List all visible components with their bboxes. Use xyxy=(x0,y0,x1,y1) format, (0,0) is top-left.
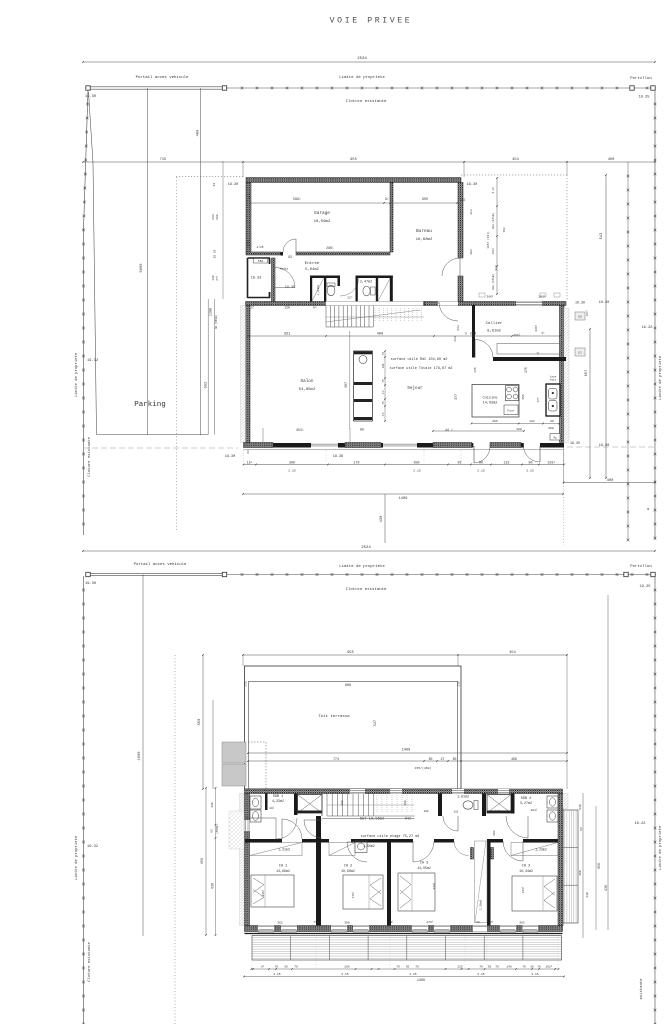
svg-text:355: 355 xyxy=(522,394,525,399)
svg-text:388: 388 xyxy=(404,800,407,805)
svg-text:543: 543 xyxy=(600,233,604,240)
svg-text:Salon: Salon xyxy=(301,379,314,384)
svg-text:17: 17 xyxy=(250,306,254,310)
svg-text:27¹: 27¹ xyxy=(216,275,219,281)
svg-text:380: 380 xyxy=(493,830,496,835)
svg-text:909: 909 xyxy=(345,684,351,688)
svg-text:Limite de propriete: Limite de propriete xyxy=(74,835,79,880)
svg-text:1409: 1409 xyxy=(402,749,410,753)
svg-text:3¹: 3¹ xyxy=(390,921,394,924)
svg-text:2.15: 2.15 xyxy=(531,973,538,976)
svg-text:907: 907 xyxy=(495,265,498,270)
svg-text:197¹: 197¹ xyxy=(586,309,589,316)
svg-text:430: 430 xyxy=(585,892,589,898)
svg-text:280: 280 xyxy=(344,965,349,968)
svg-text:Toit terrasse: Toit terrasse xyxy=(318,714,350,719)
svg-text:527: 527 xyxy=(373,720,377,726)
svg-text:7¹: 7¹ xyxy=(536,353,540,356)
svg-text:454: 454 xyxy=(509,651,515,655)
svg-text:120: 120 xyxy=(284,306,290,310)
svg-text:Limite de propriete: Limite de propriete xyxy=(339,75,385,80)
svg-text:70: 70 xyxy=(396,965,400,968)
svg-text:715: 715 xyxy=(160,158,166,162)
svg-text:Cloture existante: Cloture existante xyxy=(346,587,387,592)
svg-text:942: 942 xyxy=(405,817,411,821)
svg-text:30: 30 xyxy=(406,965,410,968)
svg-text:454: 454 xyxy=(512,158,518,162)
svg-text:16,68m2: 16,68m2 xyxy=(416,238,433,242)
svg-text:400: 400 xyxy=(607,479,614,483)
svg-text:14,05m2: 14,05m2 xyxy=(417,866,431,870)
svg-text:Entree: Entree xyxy=(305,261,320,266)
svg-text:5,27m2: 5,27m2 xyxy=(520,801,532,805)
svg-text:22⁵: 22⁵ xyxy=(347,296,352,300)
svg-text:surface utile RdC 104,60 m2: surface utile RdC 104,60 m2 xyxy=(391,357,448,362)
svg-text:75: 75 xyxy=(382,401,385,405)
svg-text:370¹: 370¹ xyxy=(246,239,250,247)
svg-text:44 ¹: 44 ¹ xyxy=(445,428,453,432)
svg-text:430: 430 xyxy=(211,883,215,889)
svg-text:70: 70 xyxy=(415,965,419,968)
svg-text:175: 175 xyxy=(524,367,528,373)
svg-text:300: 300 xyxy=(289,460,295,464)
svg-text:388: 388 xyxy=(516,428,522,431)
svg-text:286¹: 286¹ xyxy=(326,246,334,250)
svg-text:18,56m2: 18,56m2 xyxy=(314,220,331,224)
svg-text:CH 1: CH 1 xyxy=(279,865,287,869)
svg-text:EJ: EJ xyxy=(578,352,582,355)
svg-text:Limite de propriete: Limite de propriete xyxy=(74,352,79,397)
svg-text:283¹: 283¹ xyxy=(538,296,545,299)
svg-text:(55%B): (55%B) xyxy=(215,824,219,834)
svg-text:102¹: 102¹ xyxy=(546,965,553,968)
svg-text:225: 225 xyxy=(457,965,462,968)
svg-text:5600: 5600 xyxy=(140,264,144,273)
svg-text:300: 300 xyxy=(414,460,420,464)
svg-text:a: a xyxy=(647,508,649,512)
svg-text:6¹: 6¹ xyxy=(261,965,265,968)
svg-text:234: 234 xyxy=(457,325,460,331)
svg-text:1,23m2: 1,23m2 xyxy=(535,848,547,852)
svg-text:30: 30 xyxy=(284,965,288,968)
svg-text:300: 300 xyxy=(344,921,350,925)
svg-text:2.15: 2.15 xyxy=(288,469,296,473)
svg-text:47: 47 xyxy=(441,757,445,761)
svg-text:54,85m2: 54,85m2 xyxy=(299,388,316,392)
svg-text:2.15: 2.15 xyxy=(526,469,534,473)
svg-text:Four: Four xyxy=(507,410,514,413)
svg-text:vais: vais xyxy=(550,378,557,382)
svg-text:204¹: 204¹ xyxy=(531,809,538,812)
svg-text:1409: 1409 xyxy=(417,979,425,983)
svg-text:388: 388 xyxy=(548,426,554,430)
svg-text:176¹: 176¹ xyxy=(426,920,434,924)
svg-text:650: 650 xyxy=(597,863,601,869)
svg-text:2.15: 2.15 xyxy=(273,973,280,976)
svg-text:Limite de propriete: Limite de propriete xyxy=(339,564,385,569)
svg-text:19.30: 19.30 xyxy=(599,444,610,448)
svg-text:30: 30 xyxy=(488,965,492,968)
svg-text:2.15: 2.15 xyxy=(477,973,484,976)
svg-text:EU: EU xyxy=(578,316,582,319)
svg-text:19.30: 19.30 xyxy=(599,301,610,305)
svg-text:774: 774 xyxy=(333,757,339,761)
svg-text:19.36: 19.36 xyxy=(333,455,344,459)
svg-text:62: 62 xyxy=(213,183,216,187)
svg-text:430: 430 xyxy=(380,516,384,523)
svg-text:1409: 1409 xyxy=(399,497,408,501)
svg-text:300 (15%B): 300 (15%B) xyxy=(491,274,495,291)
svg-text:Cloture existante: Cloture existante xyxy=(346,99,387,104)
svg-text:Limite de propriete: Limite de propriete xyxy=(658,355,663,400)
svg-text:331: 331 xyxy=(284,332,290,336)
svg-text:Cloture existante: Cloture existante xyxy=(87,436,92,476)
svg-text:63: 63 xyxy=(211,829,214,833)
svg-text:Portail acces vehicule: Portail acces vehicule xyxy=(136,75,189,80)
svg-text:5,04m2: 5,04m2 xyxy=(305,268,319,272)
svg-text:235: 235 xyxy=(244,681,248,687)
svg-text:70: 70 xyxy=(294,965,298,968)
svg-text:206: 206 xyxy=(492,419,498,423)
svg-text:1200: 1200 xyxy=(210,308,214,316)
svg-text:453¹: 453¹ xyxy=(296,428,304,432)
svg-text:145: 145 xyxy=(474,367,477,372)
svg-text:16.22: 16.22 xyxy=(634,822,645,826)
svg-text:Portillon: Portillon xyxy=(630,564,652,569)
svg-text:9.0¹: 9.0¹ xyxy=(492,186,495,193)
svg-text:90: 90 xyxy=(529,460,533,464)
svg-text:70: 70 xyxy=(495,965,499,968)
svg-text:75: 75 xyxy=(382,379,385,383)
svg-text:CH 2: CH 2 xyxy=(344,865,352,869)
svg-text:41⁵: 41⁵ xyxy=(381,411,385,416)
svg-text:DGT 10,56m2: DGT 10,56m2 xyxy=(360,818,384,822)
svg-text:19.30: 19.30 xyxy=(85,95,96,99)
svg-text:122: 122 xyxy=(529,419,535,423)
svg-text:19.35: 19.35 xyxy=(285,286,296,290)
svg-text:400: 400 xyxy=(608,158,614,162)
svg-text:140: 140 xyxy=(506,965,511,968)
svg-text:Bureau: Bureau xyxy=(416,229,432,234)
svg-text:70: 70 xyxy=(275,965,279,968)
svg-text:existante: existante xyxy=(639,978,644,1000)
svg-text:Limite de propriete: Limite de propriete xyxy=(658,825,663,870)
svg-text:70: 70 xyxy=(479,965,483,968)
svg-text:VOIE PRIVEE: VOIE PRIVEE xyxy=(330,17,413,26)
svg-text:386¹: 386¹ xyxy=(513,333,521,337)
svg-text:8,61m2: 8,61m2 xyxy=(487,330,501,334)
svg-text:360: 360 xyxy=(578,870,582,876)
svg-text:302: 302 xyxy=(519,921,525,925)
svg-text:192: 192 xyxy=(454,811,459,814)
svg-text:400: 400 xyxy=(377,332,383,336)
svg-text:102¹: 102¹ xyxy=(548,460,556,464)
svg-text:657: 657 xyxy=(585,370,589,377)
svg-text:Cellier: Cellier xyxy=(486,321,503,326)
svg-text:30: 30 xyxy=(530,965,534,968)
svg-text:CH 3: CH 3 xyxy=(420,862,428,866)
svg-text:2.15: 2.15 xyxy=(341,973,348,976)
svg-text:Cuisine: Cuisine xyxy=(482,396,497,401)
svg-text:120: 120 xyxy=(382,363,385,368)
svg-text:Garage: Garage xyxy=(314,211,330,216)
svg-text:387: 387 xyxy=(344,382,348,388)
svg-text:1¹: 1¹ xyxy=(465,331,468,335)
svg-text:302: 302 xyxy=(277,921,283,925)
svg-text:Sejour: Sejour xyxy=(407,386,423,391)
svg-text:4,33m2: 4,33m2 xyxy=(272,799,284,803)
svg-text:134¹: 134¹ xyxy=(522,886,525,893)
svg-text:300 (15%B): 300 (15%B) xyxy=(491,213,495,230)
svg-text:1,50m2: 1,50m2 xyxy=(363,844,375,848)
svg-text:10,44m2: 10,44m2 xyxy=(519,869,533,873)
svg-text:3¹A: 3¹A xyxy=(248,193,251,198)
svg-text:Cloture existante: Cloture existante xyxy=(87,941,92,981)
svg-text:177: 177 xyxy=(537,397,540,402)
svg-text:60: 60 xyxy=(453,757,457,761)
svg-text:63: 63 xyxy=(580,827,583,831)
svg-text:1600: 1600 xyxy=(138,752,142,761)
svg-text:19.32: 19.32 xyxy=(87,359,98,363)
svg-text:540: 540 xyxy=(578,804,582,810)
svg-text:599¹: 599¹ xyxy=(293,197,301,201)
svg-text:Portail acces vehicule: Portail acces vehicule xyxy=(134,562,187,567)
svg-text:surface utile Totale 179,67 m2: surface utile Totale 179,67 m2 xyxy=(389,366,452,371)
svg-text:19.30: 19.30 xyxy=(228,183,239,187)
svg-text:20¹: 20¹ xyxy=(269,807,274,810)
svg-text:Parking: Parking xyxy=(134,401,166,409)
svg-text:150: 150 xyxy=(503,227,506,232)
svg-text:2.15: 2.15 xyxy=(477,469,485,473)
svg-text:552: 552 xyxy=(205,382,209,389)
svg-text:955: 955 xyxy=(350,158,356,162)
svg-text:10,96m2: 10,96m2 xyxy=(341,869,355,873)
svg-text:550: 550 xyxy=(198,719,202,726)
svg-text:80: 80 xyxy=(360,428,364,432)
svg-text:90: 90 xyxy=(479,460,483,464)
svg-text:23: 23 xyxy=(461,198,465,202)
svg-text:115¹: 115¹ xyxy=(352,891,355,898)
svg-text:955: 955 xyxy=(347,651,353,655)
svg-text:19.32: 19.32 xyxy=(87,845,98,849)
svg-text:Portillon: Portillon xyxy=(630,76,652,81)
svg-text:480: 480 xyxy=(197,130,201,137)
svg-text:60: 60 xyxy=(429,757,433,761)
svg-text:60 (55%B): 60 (55%B) xyxy=(214,315,218,329)
svg-text:226¹: 226¹ xyxy=(535,324,538,331)
svg-text:9¹: 9¹ xyxy=(385,197,389,201)
svg-text:CH 3: CH 3 xyxy=(522,865,530,869)
svg-text:1,04m2: 1,04m2 xyxy=(317,285,320,295)
svg-text:244: 244 xyxy=(470,332,476,336)
svg-text:650: 650 xyxy=(200,858,204,864)
svg-text:19.30: 19.30 xyxy=(85,582,96,586)
svg-text:2.15: 2.15 xyxy=(409,973,416,976)
svg-text:2,38m3: 2,38m3 xyxy=(480,900,483,911)
svg-text:611: 611 xyxy=(247,369,251,375)
svg-text:41⁵: 41⁵ xyxy=(381,389,385,394)
svg-text:2,47m2: 2,47m2 xyxy=(360,281,372,285)
svg-text:100: 100 xyxy=(424,810,429,813)
svg-text:75: 75 xyxy=(382,352,385,356)
svg-text:2.15: 2.15 xyxy=(413,469,421,473)
svg-text:430: 430 xyxy=(604,885,608,891)
svg-text:19.30: 19.30 xyxy=(575,301,585,305)
svg-text:19.30: 19.30 xyxy=(467,183,478,187)
svg-text:23: 23 xyxy=(247,450,250,454)
svg-text:313: 313 xyxy=(469,209,473,215)
svg-text:7¹: 7¹ xyxy=(313,921,317,924)
svg-text:300: 300 xyxy=(216,214,219,220)
svg-text:14,63m2: 14,63m2 xyxy=(483,402,498,406)
svg-text:19.30: 19.30 xyxy=(570,441,580,445)
svg-text:70: 70 xyxy=(522,965,526,968)
svg-text:550: 550 xyxy=(258,260,264,263)
svg-text:234: 234 xyxy=(453,336,457,342)
svg-text:1057 (15l): 1057 (15l) xyxy=(486,231,490,249)
svg-text:60: 60 xyxy=(476,921,480,924)
svg-text:130: 130 xyxy=(212,275,215,281)
svg-text:1,21m3: 1,21m3 xyxy=(278,848,290,852)
svg-text:1¹25: 1¹25 xyxy=(256,246,263,249)
svg-text:5¹: 5¹ xyxy=(313,306,317,310)
svg-text:468: 468 xyxy=(511,757,517,761)
svg-text:93: 93 xyxy=(288,255,292,259)
svg-text:19.25: 19.25 xyxy=(638,96,649,100)
svg-text:19.30: 19.30 xyxy=(225,455,236,459)
svg-text:1¹: 1¹ xyxy=(541,331,545,335)
svg-text:60: 60 xyxy=(550,419,554,423)
svg-text:1,81m2: 1,81m2 xyxy=(457,795,469,799)
svg-text:38 62: 38 62 xyxy=(214,249,217,258)
svg-text:1¹7: 1¹7 xyxy=(495,810,500,813)
svg-text:2524: 2524 xyxy=(357,57,367,61)
svg-text:360¹: 360¹ xyxy=(486,296,493,299)
svg-text:70: 70 xyxy=(537,965,541,968)
svg-text:334¹: 334¹ xyxy=(433,882,436,889)
svg-text:surface utile etage 75,27 m2: surface utile etage 75,27 m2 xyxy=(361,834,420,839)
svg-text:900: 900 xyxy=(422,197,428,201)
svg-text:348: 348 xyxy=(211,802,214,807)
svg-text:388: 388 xyxy=(341,800,344,805)
svg-text:170: 170 xyxy=(354,460,360,464)
svg-text:203: 203 xyxy=(469,249,473,255)
svg-text:235: 235 xyxy=(457,681,461,687)
svg-text:15¹: 15¹ xyxy=(247,460,253,464)
svg-text:19.22: 19.22 xyxy=(641,326,652,330)
svg-text:2524: 2524 xyxy=(361,546,371,550)
svg-text:19.33: 19.33 xyxy=(251,277,262,281)
svg-text:150¹: 150¹ xyxy=(492,247,495,254)
svg-text:13,66m2: 13,66m2 xyxy=(276,869,290,873)
svg-text:132: 132 xyxy=(504,460,510,464)
svg-text:335¹: 335¹ xyxy=(262,889,265,896)
svg-text:233: 233 xyxy=(212,214,215,220)
svg-text:19.25: 19.25 xyxy=(639,585,650,589)
svg-text:377: 377 xyxy=(454,394,458,400)
svg-text:7¹: 7¹ xyxy=(490,921,494,924)
svg-text:155/(460): 155/(460) xyxy=(415,766,432,770)
